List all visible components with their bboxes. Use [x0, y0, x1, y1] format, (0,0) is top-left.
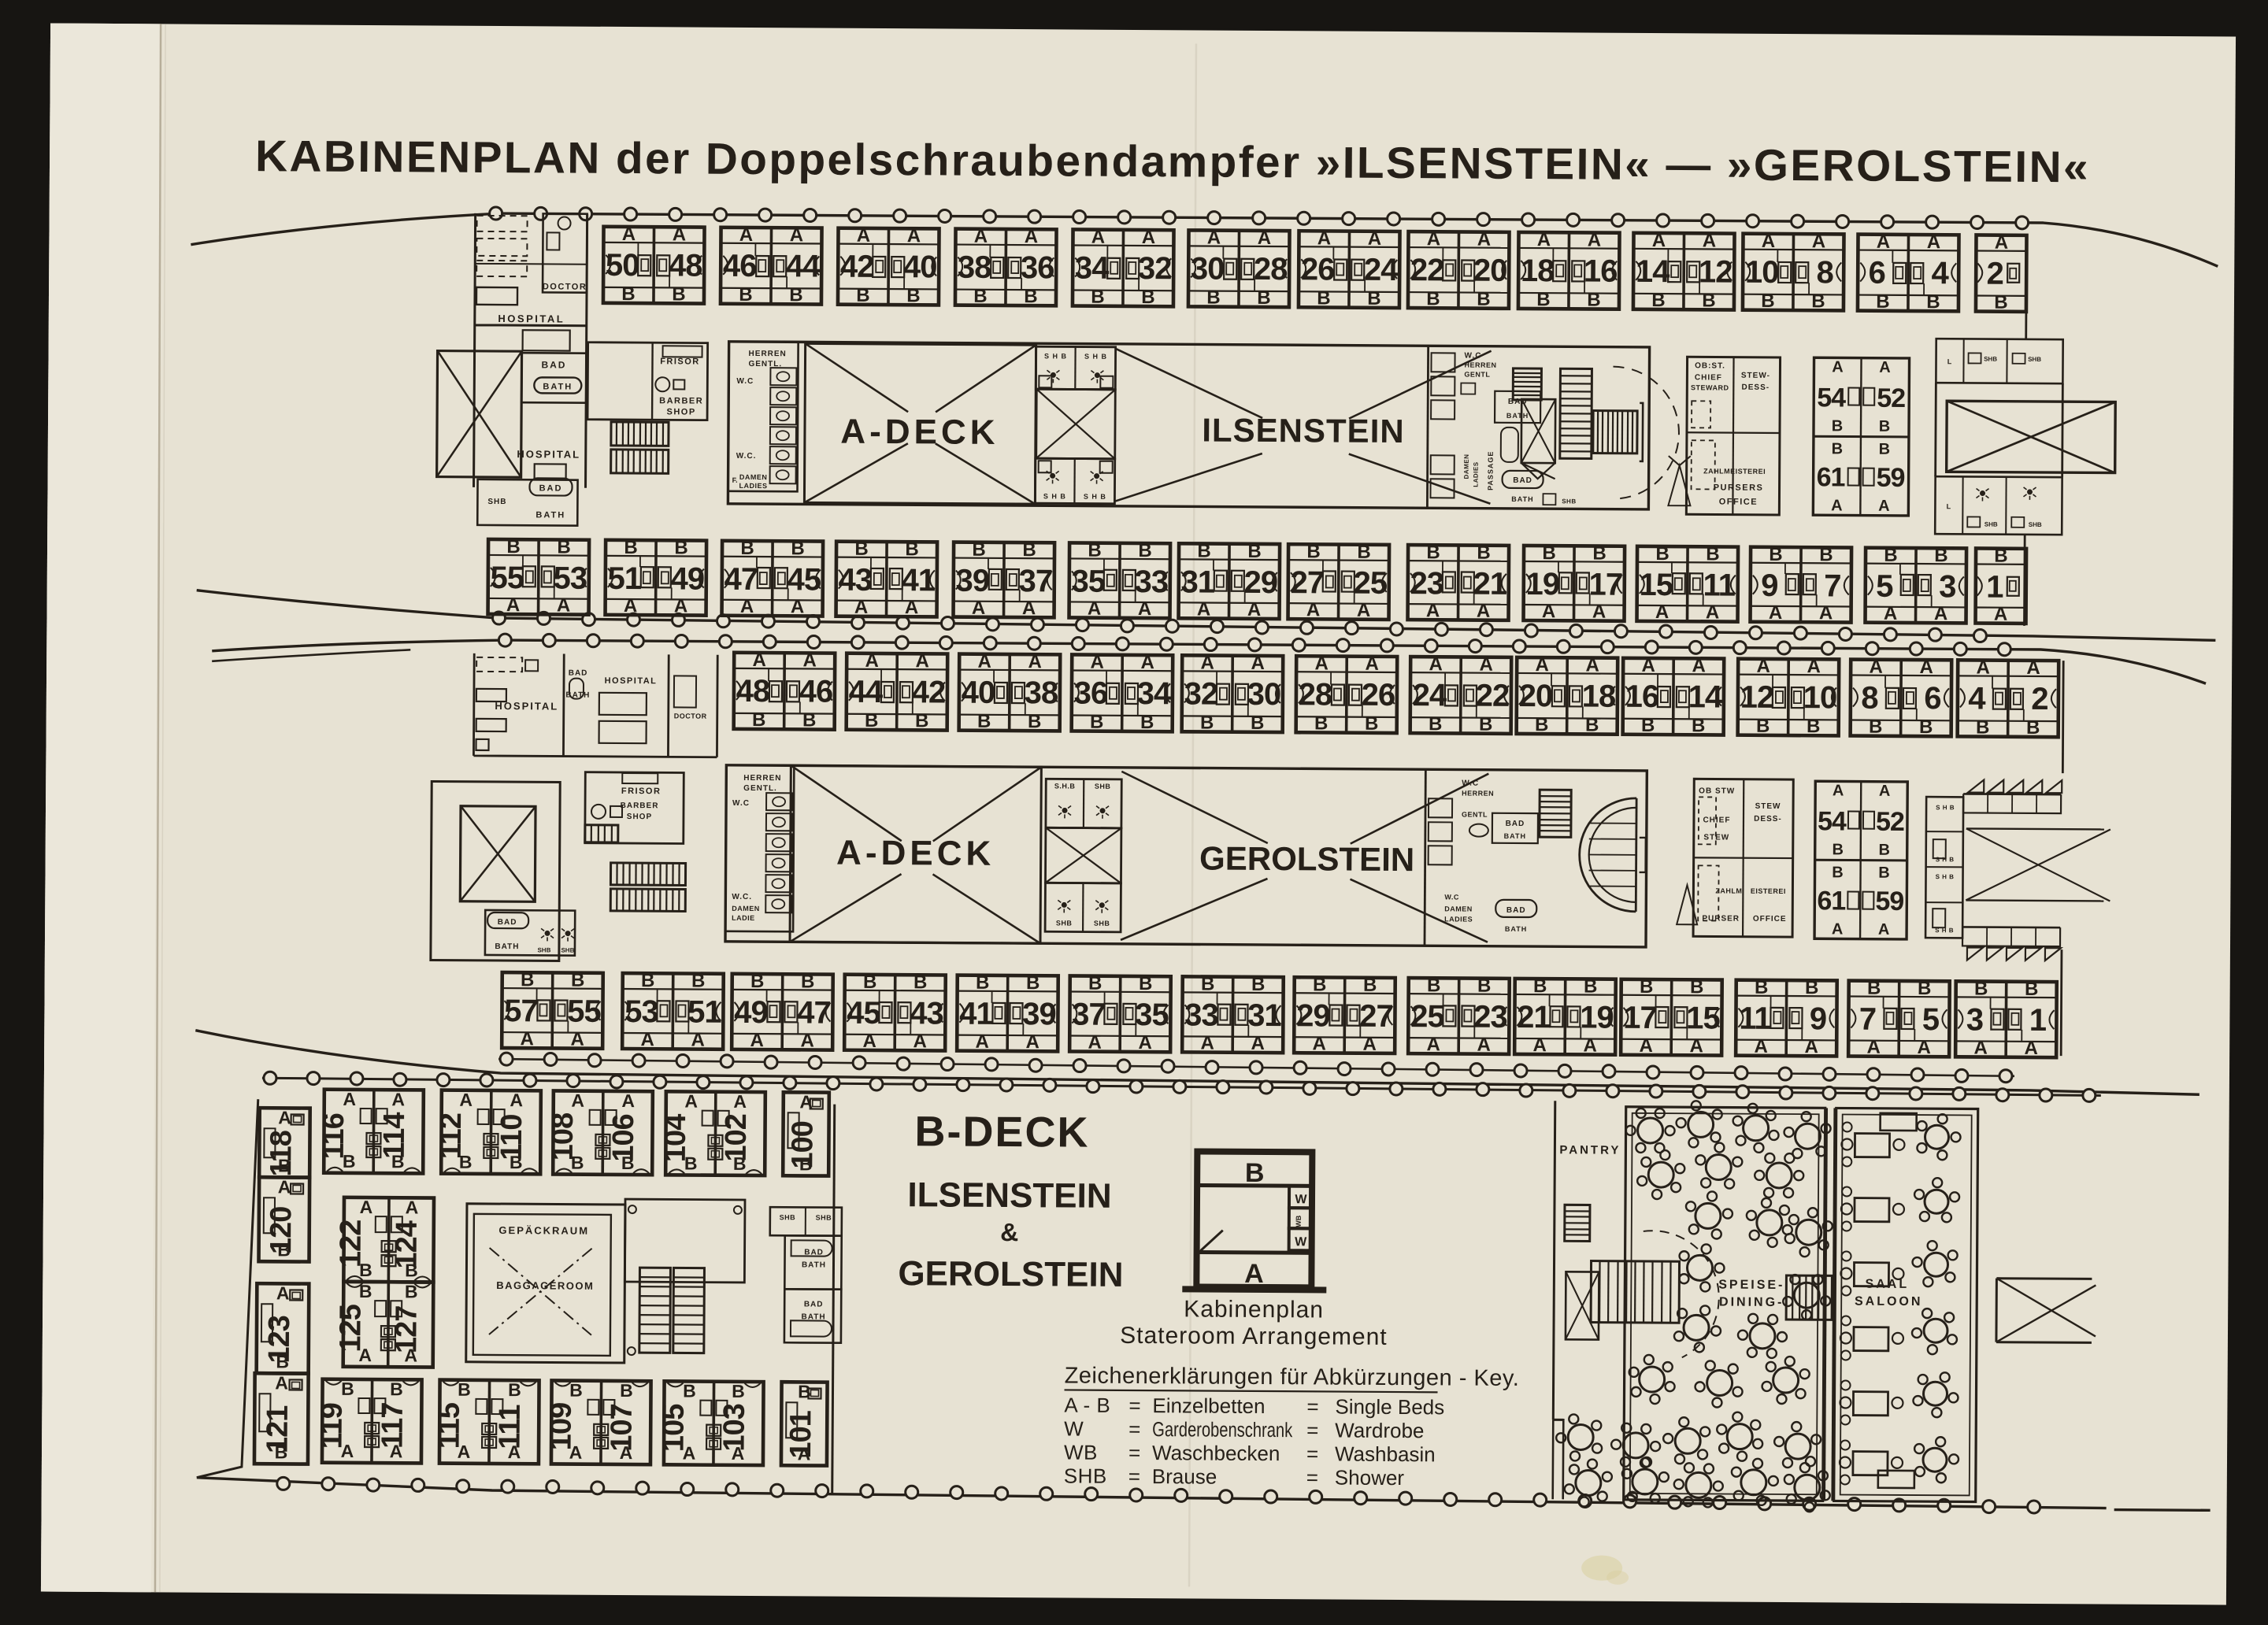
svg-text:A: A: [1207, 228, 1221, 249]
svg-text:A: A: [1025, 226, 1039, 247]
svg-text:W.C: W.C: [732, 799, 750, 808]
svg-text:A: A: [972, 598, 986, 619]
svg-text:B: B: [1138, 540, 1152, 561]
svg-text:Washbasin: Washbasin: [1335, 1442, 1436, 1467]
svg-text:HERREN: HERREN: [1462, 790, 1494, 798]
svg-text:A: A: [1306, 599, 1321, 620]
svg-text:B: B: [1918, 978, 1932, 999]
svg-text:B: B: [905, 539, 919, 560]
svg-text:B: B: [732, 1381, 745, 1401]
svg-text:SAAL: SAAL: [1866, 1278, 1910, 1291]
svg-text:B: B: [1201, 973, 1215, 994]
svg-text:B: B: [1761, 291, 1775, 312]
svg-text:A: A: [1692, 655, 1706, 676]
svg-text:A: A: [1878, 921, 1890, 938]
svg-text:B: B: [1651, 290, 1666, 311]
svg-text:B: B: [1026, 972, 1040, 994]
svg-text:A: A: [1877, 231, 1891, 253]
svg-text:S H B: S H B: [1936, 873, 1955, 880]
svg-text:W: W: [1064, 1416, 1084, 1440]
svg-text:B: B: [973, 286, 988, 307]
svg-text:118: 118: [265, 1131, 298, 1177]
svg-text:BAD: BAD: [804, 1300, 824, 1309]
svg-text:B: B: [672, 283, 686, 305]
svg-text:DAMEN: DAMEN: [1444, 905, 1473, 912]
svg-text:B: B: [691, 971, 706, 992]
svg-text:A: A: [1200, 652, 1214, 673]
svg-text:108: 108: [547, 1113, 580, 1161]
svg-text:WB: WB: [1295, 1215, 1303, 1227]
svg-text:B: B: [458, 1379, 471, 1400]
svg-text:A: A: [1091, 227, 1106, 248]
svg-text:GEROLSTEIN: GEROLSTEIN: [1199, 839, 1414, 878]
svg-text:A: A: [691, 1030, 705, 1051]
svg-text:A: A: [1831, 497, 1843, 514]
svg-text:A: A: [624, 595, 638, 616]
svg-text:CHIEF: CHIEF: [1703, 816, 1730, 824]
svg-text:B: B: [641, 970, 655, 991]
svg-text:BAD: BAD: [569, 669, 588, 678]
svg-text:=: =: [1128, 1394, 1140, 1417]
svg-text:&: &: [1000, 1218, 1018, 1246]
svg-text:114: 114: [378, 1112, 411, 1159]
svg-text:HOSPITAL: HOSPITAL: [517, 448, 580, 460]
svg-text:A: A: [2024, 1038, 2038, 1059]
svg-text:BARBER: BARBER: [659, 396, 703, 405]
svg-text:B-DECK: B-DECK: [914, 1108, 1089, 1156]
svg-text:B: B: [1313, 974, 1327, 995]
svg-text:A: A: [1995, 232, 2009, 254]
svg-text:A: A: [740, 596, 754, 617]
svg-text:PASSAGE: PASSAGE: [1487, 451, 1495, 490]
svg-text:A: A: [278, 1107, 291, 1127]
svg-text:B: B: [1692, 715, 1706, 736]
svg-text:A: A: [1317, 228, 1332, 249]
svg-text:BAD: BAD: [1513, 476, 1532, 485]
svg-text:B: B: [1247, 541, 1262, 562]
svg-text:B: B: [1585, 714, 1599, 735]
svg-text:FRISÖR: FRISÖR: [660, 356, 700, 366]
svg-text:A: A: [975, 1031, 989, 1053]
svg-text:A: A: [640, 1029, 654, 1050]
svg-text:B: B: [1919, 716, 1933, 738]
svg-text:B: B: [1879, 418, 1891, 435]
svg-text:A: A: [684, 1090, 698, 1111]
svg-text:BAD: BAD: [498, 918, 517, 927]
svg-text:DESS-: DESS-: [1754, 815, 1782, 824]
svg-text:A: A: [1819, 602, 1833, 624]
svg-text:52: 52: [1876, 807, 1904, 837]
svg-text:A: A: [1762, 231, 1776, 252]
svg-text:A: A: [621, 1090, 635, 1111]
svg-text:A: A: [974, 226, 988, 247]
svg-text:A: A: [1537, 229, 1551, 250]
svg-text:B: B: [1584, 975, 1598, 997]
svg-text:A: A: [520, 1028, 534, 1049]
svg-text:2: 2: [2031, 682, 2048, 716]
svg-text:SALOON: SALOON: [1855, 1295, 1923, 1309]
svg-text:Kabinenplan: Kabinenplan: [1184, 1296, 1324, 1323]
svg-text:SPEISE-: SPEISE-: [1718, 1279, 1784, 1293]
svg-text:B: B: [1427, 975, 1441, 996]
svg-text:A: A: [1869, 657, 1883, 678]
svg-text:14: 14: [1688, 679, 1724, 714]
svg-text:A: A: [1140, 652, 1154, 673]
svg-text:B: B: [1206, 287, 1221, 309]
svg-text:B: B: [1141, 287, 1155, 308]
svg-text:GEROLSTEIN: GEROLSTEIN: [898, 1254, 1123, 1294]
svg-text:S H B: S H B: [1043, 492, 1066, 500]
svg-text:A: A: [278, 1176, 291, 1197]
svg-text:A: A: [854, 597, 869, 618]
svg-text:SHB: SHB: [780, 1213, 796, 1221]
svg-text:B: B: [1367, 288, 1381, 309]
svg-text:S.H.B: S.H.B: [1054, 782, 1076, 790]
svg-text:PURSER: PURSER: [1702, 914, 1740, 923]
svg-text:A: A: [1652, 230, 1666, 251]
svg-text:FRISOR: FRISOR: [621, 787, 661, 796]
svg-text:101: 101: [784, 1410, 817, 1459]
svg-text:B: B: [621, 283, 636, 305]
svg-text:A: A: [1477, 229, 1492, 250]
svg-text:B: B: [620, 1380, 633, 1401]
svg-text:111: 111: [494, 1405, 527, 1449]
svg-text:B: B: [1542, 542, 1556, 564]
svg-text:B: B: [1769, 544, 1783, 565]
svg-text:A: A: [752, 650, 766, 671]
svg-text:A: A: [1532, 1035, 1547, 1056]
svg-text:A: A: [1641, 655, 1655, 676]
svg-text:116: 116: [317, 1113, 350, 1160]
svg-text:BATH: BATH: [1504, 832, 1526, 840]
svg-text:54: 54: [1817, 383, 1846, 413]
svg-text:A: A: [1976, 657, 1990, 678]
svg-text:A: A: [1917, 1037, 1931, 1058]
svg-text:W: W: [1295, 1193, 1307, 1206]
svg-text:A: A: [1312, 1033, 1326, 1054]
svg-text:4: 4: [1968, 681, 1986, 716]
svg-text:Einzelbetten: Einzelbetten: [1152, 1394, 1265, 1418]
svg-text:BATH: BATH: [543, 382, 573, 391]
svg-text:=: =: [1306, 1465, 1318, 1489]
svg-text:B: B: [1306, 541, 1321, 562]
svg-text:B: B: [865, 710, 879, 731]
svg-text:B: B: [1832, 864, 1844, 881]
svg-text:B: B: [1706, 543, 1720, 564]
svg-text:A: A: [1655, 602, 1669, 623]
svg-text:A: A: [1866, 1037, 1881, 1058]
svg-text:Zeichenerklärungen für Abkürzu: Zeichenerklärungen für Abkürzungen - Key…: [1065, 1363, 1520, 1391]
svg-text:A: A: [673, 224, 687, 245]
svg-text:A: A: [1754, 1036, 1768, 1057]
svg-text:123: 123: [263, 1316, 296, 1364]
svg-text:105: 105: [658, 1404, 691, 1453]
svg-text:3: 3: [1966, 1002, 1984, 1037]
svg-text:W.C: W.C: [1462, 779, 1479, 788]
svg-text:BAGGAGEROOM: BAGGAGEROOM: [496, 1279, 594, 1292]
svg-text:A: A: [1088, 1032, 1102, 1053]
svg-text:B: B: [1876, 291, 1890, 313]
svg-text:B: B: [1245, 1158, 1265, 1188]
svg-text:A: A: [1368, 228, 1382, 250]
svg-text:L: L: [1947, 357, 1952, 365]
svg-text:BAD: BAD: [539, 483, 563, 493]
svg-text:ILSENSTEIN: ILSENSTEIN: [907, 1175, 1111, 1216]
svg-text:A: A: [570, 1029, 584, 1050]
svg-text:SHB: SHB: [1984, 521, 1998, 528]
svg-text:2: 2: [1986, 257, 2003, 291]
svg-text:DAMEN: DAMEN: [732, 905, 760, 912]
svg-text:S H B: S H B: [1936, 804, 1955, 811]
svg-text:A: A: [1251, 653, 1265, 674]
svg-text:=: =: [1128, 1441, 1140, 1464]
svg-text:=: =: [1128, 1417, 1140, 1441]
svg-text:A: A: [1362, 1034, 1377, 1055]
svg-text:B: B: [1426, 288, 1440, 309]
svg-text:B: B: [1819, 544, 1833, 565]
svg-text:A-DECK: A-DECK: [836, 834, 995, 873]
svg-text:A: A: [865, 650, 879, 672]
svg-text:SHB: SHB: [487, 498, 506, 506]
svg-text:BATH: BATH: [802, 1260, 826, 1269]
svg-text:A: A: [1258, 228, 1272, 249]
svg-text:54: 54: [1818, 806, 1847, 836]
svg-text:EISTEREI: EISTEREI: [1751, 887, 1786, 895]
svg-text:B: B: [1641, 715, 1655, 736]
svg-text:A: A: [1357, 600, 1371, 621]
svg-text:8: 8: [1816, 255, 1833, 290]
svg-text:B: B: [1140, 712, 1154, 733]
svg-text:OFFICE: OFFICE: [1753, 915, 1787, 924]
svg-text:BATH: BATH: [535, 510, 565, 520]
svg-text:Waschbecken: Waschbecken: [1152, 1441, 1280, 1465]
svg-text:A: A: [1028, 651, 1042, 672]
svg-text:Wardrobe: Wardrobe: [1335, 1419, 1424, 1443]
svg-text:A: A: [1878, 498, 1890, 515]
svg-text:A: A: [506, 594, 521, 616]
svg-text:STEWARD: STEWARD: [1691, 383, 1729, 391]
svg-text:A: A: [1365, 653, 1379, 675]
svg-text:B: B: [1200, 712, 1214, 733]
svg-text:Shower: Shower: [1335, 1466, 1405, 1490]
svg-text:SHB: SHB: [1056, 919, 1073, 927]
svg-text:B: B: [1535, 714, 1549, 735]
svg-text:S H B: S H B: [1084, 353, 1107, 361]
svg-text:B: B: [915, 710, 929, 731]
svg-text:5: 5: [1876, 569, 1893, 604]
svg-text:B: B: [1976, 716, 1990, 738]
svg-text:A: A: [857, 225, 871, 246]
svg-text:=: =: [1128, 1464, 1140, 1488]
svg-text:A: A: [1585, 654, 1599, 676]
svg-text:102: 102: [720, 1114, 753, 1162]
svg-text:B: B: [569, 1380, 583, 1401]
svg-text:A: A: [1022, 598, 1036, 619]
svg-text:Brause: Brause: [1152, 1464, 1217, 1489]
svg-text:B: B: [1091, 287, 1105, 308]
svg-text:SHB: SHB: [561, 947, 574, 954]
svg-text:61: 61: [1817, 462, 1845, 492]
svg-text:A: A: [1706, 602, 1720, 623]
svg-text:3: 3: [1939, 569, 1956, 604]
svg-text:A: A: [1973, 1037, 1988, 1058]
svg-text:A: A: [1542, 601, 1556, 622]
svg-text:B: B: [1878, 842, 1890, 859]
svg-text:B: B: [1587, 289, 1601, 310]
svg-text:9: 9: [1761, 568, 1778, 603]
svg-text:DAMEN: DAMEN: [739, 473, 768, 481]
svg-text:121: 121: [261, 1405, 295, 1454]
svg-text:A: A: [1879, 783, 1891, 800]
svg-text:DESS-: DESS-: [1742, 383, 1770, 392]
svg-text:B: B: [791, 538, 805, 559]
svg-text:B: B: [750, 971, 765, 992]
svg-text:A: A: [674, 595, 688, 616]
svg-text:B: B: [1314, 713, 1329, 734]
svg-text:PURSERS: PURSERS: [1714, 483, 1764, 492]
svg-text:B: B: [789, 284, 803, 305]
svg-text:LADIE: LADIE: [732, 914, 755, 922]
svg-text:A: A: [750, 1030, 764, 1051]
svg-text:A: A: [1247, 599, 1262, 620]
svg-text:SHB: SHB: [816, 1214, 832, 1222]
svg-text:BATH: BATH: [1506, 412, 1529, 420]
svg-text:A: A: [1090, 652, 1104, 673]
svg-text:B: B: [1477, 289, 1491, 310]
svg-text:OB STW: OB STW: [1699, 787, 1735, 795]
svg-text:S H B: S H B: [1936, 856, 1955, 863]
svg-text:A: A: [1994, 604, 2008, 625]
svg-text:F.: F.: [732, 476, 738, 484]
svg-text:A: A: [1833, 782, 1844, 799]
svg-text:PANTRY: PANTRY: [1559, 1143, 1621, 1157]
svg-text:DINING-: DINING-: [1719, 1296, 1784, 1310]
svg-text:61: 61: [1817, 886, 1845, 916]
svg-text:B: B: [1702, 290, 1716, 311]
svg-text:44: 44: [786, 249, 821, 283]
svg-text:A: A: [1477, 1035, 1491, 1056]
svg-text:A: A: [905, 597, 919, 618]
svg-text:A: A: [343, 1089, 356, 1109]
svg-text:A: A: [1142, 227, 1156, 248]
svg-text:BAD: BAD: [1506, 906, 1526, 915]
svg-text:STEW: STEW: [1703, 833, 1729, 842]
svg-text:B: B: [1690, 976, 1704, 998]
svg-text:A: A: [1479, 654, 1493, 676]
svg-text:A: A: [1756, 656, 1770, 677]
svg-text:103: 103: [718, 1404, 751, 1452]
svg-text:A: A: [1427, 228, 1441, 250]
svg-text:B: B: [1257, 287, 1271, 309]
svg-text:9: 9: [1810, 1001, 1827, 1036]
svg-text:Single Beds: Single Beds: [1335, 1395, 1444, 1420]
svg-text:A: A: [1025, 1031, 1039, 1053]
svg-text:ZAHLMEISTEREI: ZAHLMEISTEREI: [1703, 467, 1766, 475]
svg-text:W.C: W.C: [736, 377, 754, 386]
svg-text:SHB: SHB: [1094, 920, 1110, 927]
svg-text:A: A: [1535, 654, 1549, 676]
svg-text:SHOP: SHOP: [627, 812, 652, 821]
svg-text:BAD: BAD: [1506, 820, 1525, 828]
svg-text:A: A: [1639, 1035, 1653, 1057]
svg-text:B: B: [1832, 417, 1844, 435]
svg-text:B: B: [802, 709, 817, 731]
svg-text:B: B: [856, 285, 870, 306]
svg-text:B: B: [1811, 291, 1825, 312]
svg-text:A: A: [1314, 653, 1329, 674]
svg-text:B: B: [801, 971, 815, 992]
svg-text:CHIEF: CHIEF: [1695, 373, 1722, 382]
svg-text:8: 8: [1861, 681, 1878, 716]
svg-text:W.C.: W.C.: [732, 893, 752, 901]
svg-text:109: 109: [545, 1403, 578, 1451]
svg-text:BATH: BATH: [1511, 495, 1533, 503]
svg-text:B: B: [2025, 979, 2039, 1000]
svg-text:A: A: [2026, 657, 2040, 679]
svg-text:B: B: [1807, 716, 1821, 737]
svg-text:=: =: [1306, 1442, 1318, 1465]
svg-text:110: 110: [495, 1114, 528, 1160]
svg-text:A: A: [977, 651, 991, 672]
svg-text:B: B: [557, 536, 571, 557]
svg-text:HOSPITAL: HOSPITAL: [605, 676, 658, 686]
svg-text:B: B: [1088, 540, 1102, 561]
svg-text:106: 106: [607, 1114, 640, 1162]
svg-text:SHB: SHB: [1064, 1464, 1107, 1487]
svg-text:HERREN: HERREN: [1464, 361, 1496, 369]
svg-text:B: B: [977, 711, 991, 732]
svg-text:B: B: [1251, 974, 1266, 995]
svg-text:A: A: [915, 650, 929, 672]
svg-text:A: A: [1477, 601, 1491, 622]
svg-text:7: 7: [1859, 1002, 1877, 1037]
svg-text:59: 59: [1875, 887, 1903, 916]
svg-text:A: A: [1832, 358, 1844, 376]
svg-text:B: B: [1994, 546, 2008, 567]
svg-text:A: A: [1927, 231, 1941, 253]
svg-text:W: W: [1295, 1235, 1307, 1249]
svg-text:B: B: [508, 1379, 521, 1400]
svg-text:119: 119: [316, 1403, 349, 1449]
svg-text:A: A: [1592, 602, 1606, 623]
svg-text:1: 1: [1986, 570, 2003, 605]
svg-text:SHB: SHB: [1984, 356, 1997, 363]
svg-text:A: A: [1919, 657, 1933, 678]
svg-text:B: B: [740, 538, 754, 559]
svg-text:LADIES: LADIES: [1473, 461, 1480, 487]
svg-text:A: A: [1197, 598, 1211, 620]
svg-text:A: A: [800, 1030, 814, 1051]
svg-text:A: A: [622, 224, 636, 245]
svg-text:HOSPITAL: HOSPITAL: [498, 313, 565, 325]
svg-text:LADIES: LADIES: [1444, 915, 1473, 923]
svg-text:A: A: [459, 1090, 472, 1110]
svg-text:A: A: [1807, 656, 1821, 677]
svg-text:B: B: [1024, 286, 1038, 307]
svg-text:SHB: SHB: [1095, 783, 1111, 790]
svg-text:B: B: [1429, 713, 1443, 735]
svg-text:A: A: [1429, 653, 1443, 675]
svg-text:A: A: [1088, 598, 1102, 620]
svg-text:A: A: [1251, 1033, 1265, 1054]
svg-text:A-DECK: A-DECK: [840, 413, 999, 452]
svg-text:SHB: SHB: [2029, 521, 2042, 528]
svg-text:GENTL.: GENTL.: [743, 784, 777, 793]
svg-text:HERREN: HERREN: [743, 774, 781, 783]
svg-text:A: A: [791, 596, 805, 617]
svg-text:GENTL: GENTL: [1464, 371, 1490, 379]
svg-text:B: B: [752, 709, 766, 731]
